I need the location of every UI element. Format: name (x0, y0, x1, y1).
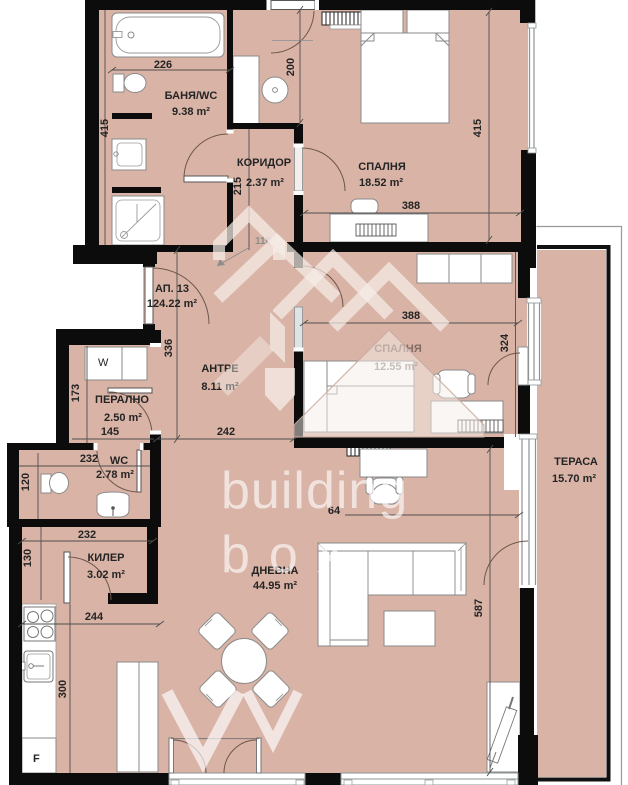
svg-text:145: 145 (101, 426, 119, 438)
svg-text:587: 587 (473, 599, 485, 617)
svg-text:300: 300 (57, 680, 69, 698)
svg-text:2.37 m²: 2.37 m² (246, 177, 284, 189)
svg-text:415: 415 (99, 119, 111, 137)
svg-text:СПАЛНЯ: СПАЛНЯ (358, 161, 406, 173)
svg-text:ПЕРАЛНО: ПЕРАЛНО (95, 394, 149, 406)
svg-text:ТЕРАСА: ТЕРАСА (554, 456, 598, 468)
svg-text:226: 226 (154, 59, 172, 71)
svg-text:324: 324 (499, 333, 511, 352)
svg-text:15.70 m²: 15.70 m² (552, 473, 596, 485)
svg-text:232: 232 (80, 453, 98, 465)
svg-text:215: 215 (232, 177, 244, 195)
svg-text:173: 173 (70, 384, 82, 402)
svg-text:200: 200 (285, 58, 297, 76)
svg-text:БАНЯ/WC: БАНЯ/WC (165, 90, 218, 102)
svg-text:120: 120 (20, 473, 32, 491)
svg-text:W: W (98, 357, 109, 369)
svg-text:232: 232 (78, 529, 96, 541)
svg-text:242: 242 (217, 426, 235, 438)
svg-text:АП. 13: АП. 13 (155, 283, 189, 295)
svg-text:F: F (33, 753, 40, 765)
svg-text:КИЛЕР: КИЛЕР (87, 552, 124, 564)
svg-text:18.52 m²: 18.52 m² (359, 177, 403, 189)
svg-text:3.02 m²: 3.02 m² (87, 569, 125, 581)
svg-text:244: 244 (85, 611, 104, 623)
svg-text:336: 336 (163, 339, 175, 357)
svg-text:WC: WC (110, 455, 128, 467)
svg-text:box: box (221, 526, 362, 584)
svg-text:415: 415 (472, 119, 484, 137)
svg-text:388: 388 (402, 310, 420, 322)
svg-text:КОРИДОР: КОРИДОР (237, 157, 291, 169)
svg-text:building: building (221, 462, 408, 520)
svg-text:2.50 m²: 2.50 m² (104, 412, 142, 424)
svg-text:2.78 m²: 2.78 m² (96, 469, 134, 481)
svg-text:124.22 m²: 124.22 m² (147, 298, 197, 310)
svg-text:130: 130 (22, 549, 34, 567)
svg-text:388: 388 (402, 200, 420, 212)
svg-text:9.38 m²: 9.38 m² (172, 106, 210, 118)
